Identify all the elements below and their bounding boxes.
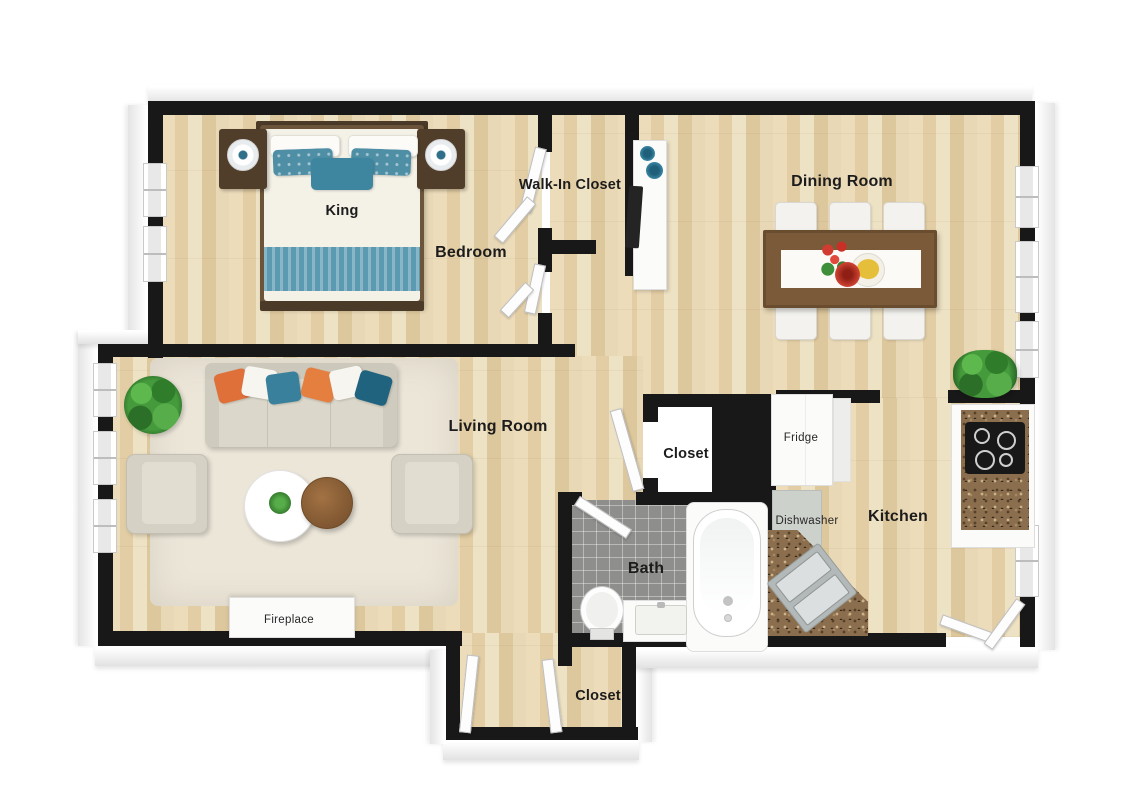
room-label-bedroom: Bedroom [435, 244, 507, 262]
exterior-wall-face-living-notch [78, 330, 148, 344]
cooktop-burner [974, 428, 990, 444]
wall [538, 313, 552, 357]
tub-faucet [723, 596, 733, 606]
fridge-side-panel [833, 398, 851, 482]
bed-label: King [325, 203, 358, 219]
coffee-table-round-wood [301, 477, 353, 529]
window [93, 363, 117, 417]
decor-bowl [640, 146, 655, 161]
bed-footboard [260, 301, 424, 311]
vanity-faucet [657, 602, 665, 608]
room-label-kitchen: Kitchen [868, 508, 928, 526]
floor-plant [124, 376, 182, 434]
room-label-walk-in-closet: Walk-In Closet [519, 177, 621, 193]
room-label-bath: Bath [628, 560, 664, 578]
wall [643, 478, 658, 505]
cooktop-burner [997, 431, 1016, 450]
table-plant [269, 492, 291, 514]
room-label-closet-entry: Closet [575, 688, 621, 704]
room-label-dining-room: Dining Room [791, 173, 893, 191]
sofa-pillow-teal [265, 371, 302, 405]
bed-lumbar-pillow [311, 158, 373, 190]
wall [538, 114, 552, 152]
window [143, 163, 167, 217]
exterior-wall-face-entry-left [430, 650, 446, 744]
wall [98, 344, 575, 357]
cooktop-burner [975, 450, 995, 470]
table-lamp [227, 139, 259, 171]
vanity-sink [635, 605, 687, 635]
exterior-wall-face-bottom-entry [443, 740, 639, 760]
wall [622, 636, 636, 740]
decor-bowl [646, 162, 663, 179]
fruit-bowl [835, 262, 860, 287]
fridge-label: Fridge [784, 432, 818, 444]
dining-chair [883, 304, 925, 340]
wall [558, 636, 572, 666]
window [1015, 321, 1039, 378]
wall [446, 631, 460, 740]
tub-drain [724, 614, 732, 622]
dishwasher-label: Dishwasher [775, 515, 838, 527]
table-lamp [425, 139, 457, 171]
dining-chair [775, 304, 817, 340]
corner-plant [953, 350, 1017, 398]
cooktop-burner [999, 453, 1013, 467]
cooktop [965, 422, 1025, 474]
toilet-base [590, 628, 614, 640]
window [1015, 166, 1039, 228]
wall [148, 101, 1032, 115]
window [143, 226, 167, 282]
wall [558, 492, 572, 647]
dining-chair [829, 304, 871, 340]
wall [446, 727, 638, 740]
window [1015, 241, 1039, 313]
window [93, 499, 117, 553]
floor-plan: King Bedroom Walk-In Closet Dining Room … [0, 0, 1140, 793]
toilet-seat [586, 592, 618, 628]
exterior-wall-face-bottom-kitchen [622, 648, 1038, 668]
bed-blanket [264, 247, 420, 291]
armchair-cushion [142, 462, 196, 524]
room-label-closet-middle: Closet [663, 446, 709, 462]
exterior-wall-face-bottom-living [95, 646, 463, 666]
window [93, 431, 117, 485]
armchair-cushion [405, 462, 459, 524]
wall [643, 394, 658, 422]
fireplace-label: Fireplace [264, 614, 314, 626]
room-label-living-room: Living Room [448, 418, 547, 436]
